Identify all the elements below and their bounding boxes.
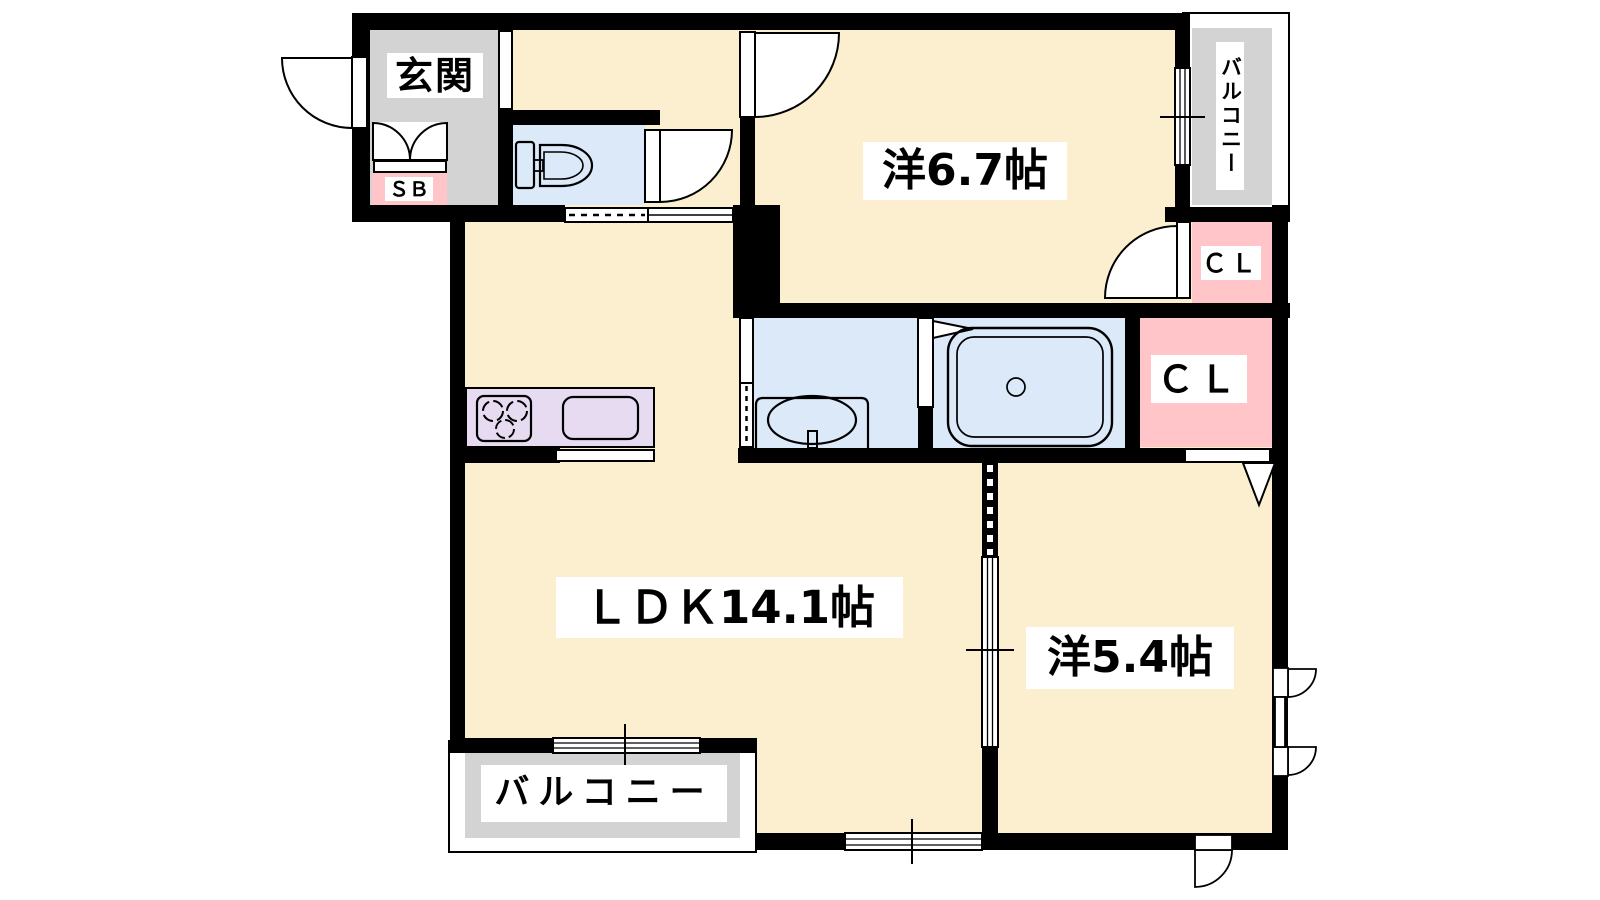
entrance-step	[498, 30, 513, 110]
bathroom-floor	[933, 318, 1125, 450]
label-balcony-bottom: バルコニー	[481, 765, 727, 822]
wall-partition-upper	[982, 462, 998, 557]
outside-left-area	[336, 222, 450, 900]
wall-ldk-bottom-left	[450, 738, 757, 753]
counter-pass-through	[555, 449, 655, 462]
wall-mid-top	[733, 303, 1290, 318]
label-genkan: 玄関	[387, 53, 483, 98]
wall-mid-bottom	[738, 448, 1288, 463]
label-western-room-1: 洋6.7帖	[863, 142, 1067, 200]
wall-toilet-top	[498, 110, 660, 125]
floorplan-canvas: 玄関 ＳＢ 洋6.7帖 バルコニー ＣＬ ＣＬ ＬＤＫ14.1帖 洋5.4帖 バ…	[0, 0, 1600, 900]
wall-column-center	[733, 205, 780, 318]
label-western-room-2: 洋5.4帖	[1026, 627, 1234, 689]
toilet-floor	[513, 125, 645, 205]
washroom-floor	[753, 318, 918, 450]
wall-counter-base	[450, 448, 560, 463]
wall-left-lower	[450, 212, 465, 740]
wall-left-upper	[352, 13, 370, 222]
wall-room2-bottom	[998, 833, 1288, 850]
wall-partition-lower	[982, 747, 998, 850]
wall-wash-bath	[918, 318, 933, 450]
kitchen-counter	[465, 387, 655, 448]
label-closet-top: ＣＬ	[1201, 246, 1261, 280]
shoe-box-door-leaf	[373, 160, 447, 173]
wall-bath-closet	[1125, 303, 1140, 463]
wall-top	[352, 13, 1190, 30]
label-shoe-box: ＳＢ	[385, 177, 433, 201]
shoe-box-door-area	[373, 122, 447, 160]
label-closet-main: ＣＬ	[1151, 355, 1247, 403]
wall-corridor-room1	[740, 117, 755, 207]
wall-room1-right	[1175, 13, 1190, 210]
label-ldk: ＬＤＫ14.1帖	[556, 577, 903, 638]
label-balcony-top: バルコニー	[1216, 42, 1244, 190]
wall-right-main	[1272, 205, 1288, 850]
wall-ldk-bottom-right	[757, 833, 998, 850]
